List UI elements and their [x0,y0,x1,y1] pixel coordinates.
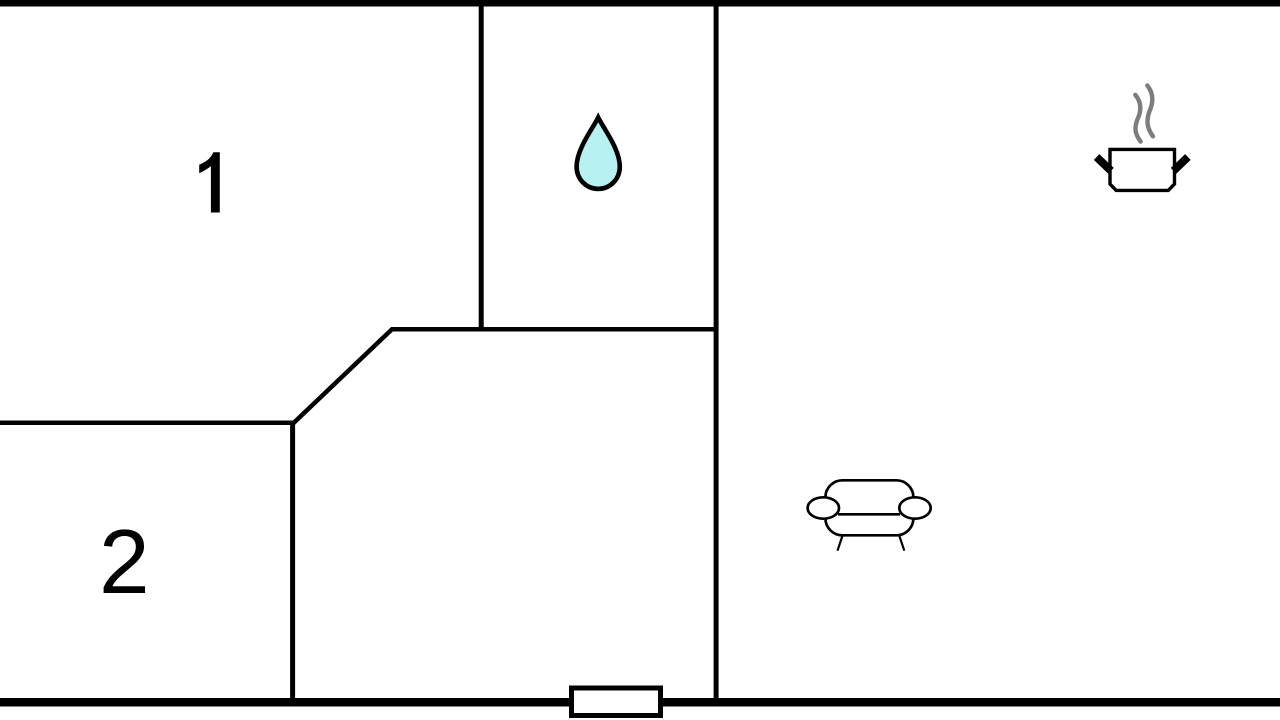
svg-text:2: 2 [99,512,150,613]
